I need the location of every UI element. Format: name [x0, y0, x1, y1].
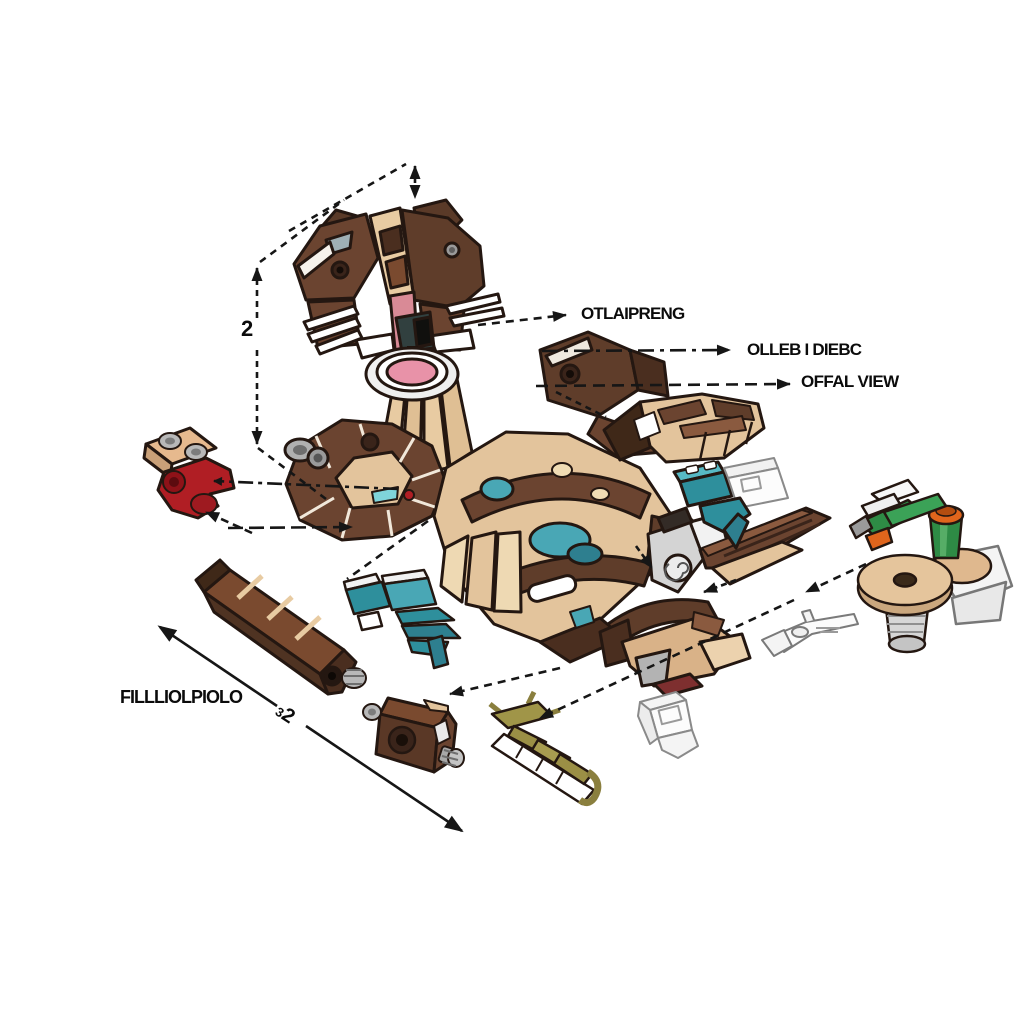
paw-assembly	[604, 394, 764, 462]
vertical-dimension-label: 2	[238, 318, 256, 340]
callout-label-1: OTLAIPRENG	[581, 304, 684, 324]
cylinder-arrow	[450, 668, 560, 694]
diagram-canvas	[0, 0, 1024, 1024]
exploded-diagram: OTLAIPRENG OLLEB I DIEBC OFFAL VIEW FILL…	[0, 0, 1024, 1024]
foot-assembly	[600, 600, 750, 696]
tool-outline-part	[762, 610, 858, 656]
red-clip-part	[144, 428, 234, 518]
body-right-arrow	[228, 527, 352, 528]
callout-label-3: OFFAL VIEW	[801, 372, 899, 392]
foot-small-arrow	[704, 580, 736, 592]
long-arm-beam	[196, 560, 366, 694]
barrel-cylinder-part	[363, 698, 464, 772]
callout-label-2: OLLEB I DIEBC	[747, 340, 861, 360]
part-name-label: FILLLIOLPIOLO	[120, 687, 242, 708]
twig-sprue-part	[490, 692, 598, 804]
ghost-outline-brick	[638, 692, 698, 758]
accessory-cluster	[850, 480, 1012, 652]
red-part-leader-2	[206, 512, 252, 533]
